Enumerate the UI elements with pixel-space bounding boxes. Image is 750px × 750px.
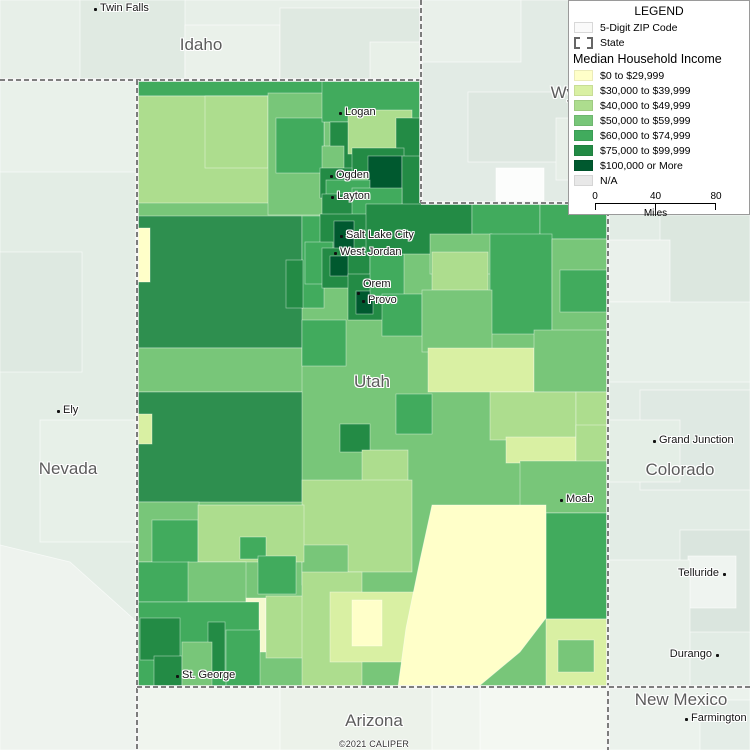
copyright-attribution: ©2021 CALIPER: [339, 739, 409, 749]
legend-class-row-1: $30,000 to $39,999: [569, 83, 749, 98]
neighbor-zip-region: [700, 700, 750, 750]
map-window: IdahoWyomingNevadaUtahColoradoArizonaNew…: [0, 0, 750, 750]
legend-zip-row: 5-Digit ZIP Code: [569, 20, 749, 35]
legend-panel: LEGEND 5-Digit ZIP Code State Median Hou…: [568, 0, 750, 215]
scale-unit: Miles: [644, 208, 667, 219]
neighbor-zip-region: [0, 80, 137, 172]
zip-region[interactable]: [402, 156, 421, 205]
zip-region[interactable]: [340, 424, 370, 452]
neighbor-zip-region: [40, 420, 137, 542]
zip-region[interactable]: [352, 600, 382, 646]
legend-class-row-4: $60,000 to $74,999: [569, 128, 749, 143]
neighbor-zip-region: [608, 240, 670, 302]
scale-tick-80: 80: [710, 191, 721, 202]
legend-class-swatch: [574, 85, 593, 96]
neighbor-zip-region: [185, 25, 280, 80]
neighbor-zip-region: [688, 556, 736, 608]
legend-heading: Median Household Income: [573, 52, 749, 66]
zip-region[interactable]: [182, 642, 212, 687]
neighbor-zip-region: [370, 42, 421, 80]
zip-region[interactable]: [558, 640, 594, 672]
legend-class-label: N/A: [600, 175, 618, 187]
legend-class-row-3: $50,000 to $59,999: [569, 113, 749, 128]
neighbor-zip-region: [496, 168, 544, 206]
zip-region[interactable]: [188, 562, 246, 602]
neighbor-zip-region: [608, 420, 680, 482]
legend-class-row-0: $0 to $29,999: [569, 68, 749, 83]
legend-class-swatch: [574, 130, 593, 141]
neighbor-zip-region: [608, 302, 750, 382]
zip-region[interactable]: [490, 234, 552, 334]
legend-class-row-6: $100,000 or More: [569, 158, 749, 173]
zip-region[interactable]: [137, 562, 189, 602]
zip-region[interactable]: [137, 228, 150, 282]
legend-classes: $0 to $29,999$30,000 to $39,999$40,000 t…: [569, 68, 749, 188]
legend-class-row-2: $40,000 to $49,999: [569, 98, 749, 113]
zip-region[interactable]: [276, 118, 324, 173]
legend-class-row-5: $75,000 to $99,999: [569, 143, 749, 158]
zip-region[interactable]: [154, 656, 182, 687]
zip-region[interactable]: [576, 425, 608, 465]
zip-region[interactable]: [428, 348, 534, 392]
legend-class-label: $30,000 to $39,999: [600, 85, 691, 97]
zip-region[interactable]: [472, 203, 540, 235]
zip-region[interactable]: [302, 320, 346, 366]
legend-class-label: $0 to $29,999: [600, 70, 664, 82]
zip-region[interactable]: [137, 414, 152, 444]
legend-class-swatch: [574, 160, 593, 171]
legend-state-row: State: [569, 35, 749, 50]
legend-class-swatch: [574, 70, 593, 81]
zip-region[interactable]: [258, 556, 296, 594]
legend-class-label: $100,000 or More: [600, 160, 683, 172]
zip-region[interactable]: [490, 392, 576, 440]
neighbor-zip-region: [0, 252, 82, 372]
legend-class-row-7: N/A: [569, 173, 749, 188]
legend-class-label: $40,000 to $49,999: [600, 100, 691, 112]
legend-class-swatch: [574, 175, 593, 186]
neighbor-zip-region: [660, 215, 750, 307]
neighbor-zip-region: [80, 0, 185, 80]
zip-region[interactable]: [140, 618, 180, 660]
scale-tick-40: 40: [650, 191, 661, 202]
zip-region[interactable]: [137, 348, 302, 392]
zip-region[interactable]: [534, 330, 608, 392]
scale-bar: 0 40 80 Miles: [595, 191, 716, 217]
scale-tick-0: 0: [592, 191, 598, 202]
state-label: State: [600, 37, 625, 49]
zip-region[interactable]: [334, 221, 354, 250]
neighbor-zip-region: [480, 687, 608, 750]
zip-region[interactable]: [560, 270, 608, 312]
zip-region[interactable]: [546, 513, 608, 619]
zip-region[interactable]: [330, 256, 348, 276]
legend-title: LEGEND: [569, 4, 749, 18]
zip-region[interactable]: [506, 437, 576, 463]
zip-region[interactable]: [382, 294, 422, 336]
legend-class-swatch: [574, 100, 593, 111]
zip-region[interactable]: [422, 290, 492, 352]
legend-class-swatch: [574, 145, 593, 156]
zip-region[interactable]: [226, 630, 260, 687]
zip-region[interactable]: [205, 96, 268, 168]
zip-swatch: [574, 22, 593, 33]
zip-region[interactable]: [286, 260, 303, 308]
neighbor-zip-region: [421, 0, 521, 62]
zip-region[interactable]: [396, 394, 432, 434]
zip-region[interactable]: [137, 392, 302, 502]
neighbor-zip-region: [608, 560, 690, 687]
zip-region[interactable]: [137, 216, 302, 348]
legend-class-label: $50,000 to $59,999: [600, 115, 691, 127]
state-swatch: [574, 37, 593, 49]
zip-label: 5-Digit ZIP Code: [600, 22, 677, 34]
legend-class-label: $60,000 to $74,999: [600, 130, 691, 142]
legend-class-swatch: [574, 115, 593, 126]
legend-class-label: $75,000 to $99,999: [600, 145, 691, 157]
zip-region[interactable]: [370, 254, 404, 296]
